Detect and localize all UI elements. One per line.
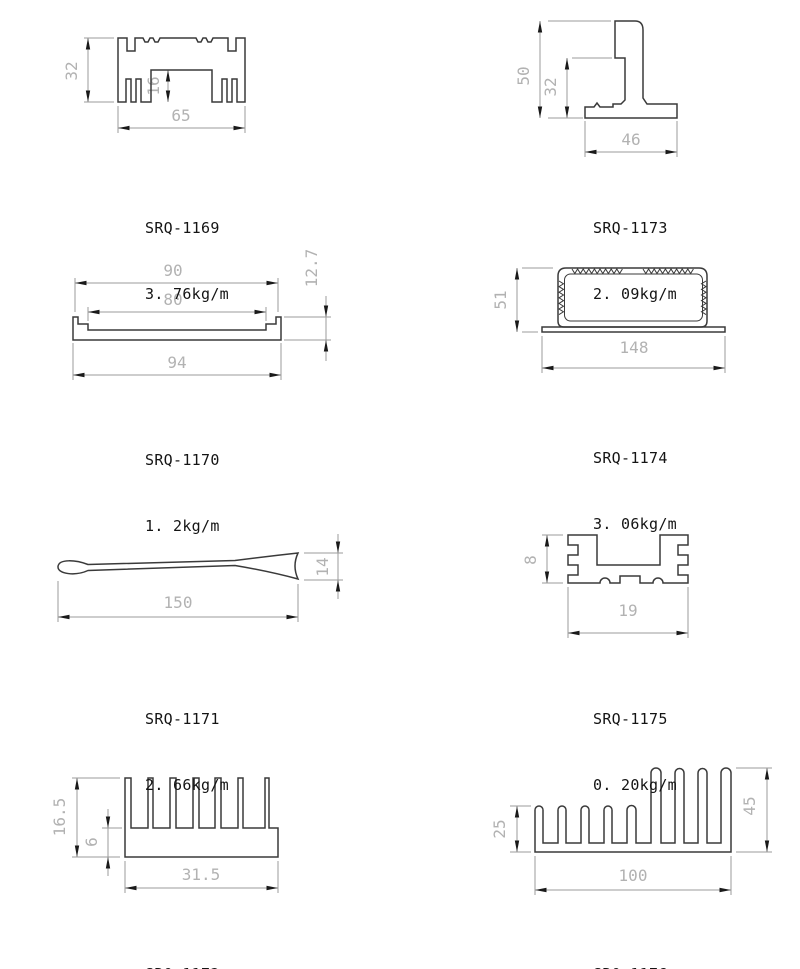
dim-width-label: 65 — [171, 106, 190, 125]
label-srq-1170: SRQ-1170 1. 2kg/m — [145, 405, 220, 559]
dim-fin-height-tall-label: 45 — [740, 796, 759, 815]
dimension-width-148: 148 — [542, 336, 725, 373]
serration-left-wall — [559, 281, 564, 315]
model-label: SRQ-1170 — [145, 449, 220, 471]
model-label: SRQ-1175 — [593, 708, 677, 730]
dim-inner-height-label: 16 — [144, 76, 163, 95]
dimension-height-14: 14 — [304, 534, 343, 599]
label-srq-1172: SRQ-1172 0. 872kg/m — [145, 919, 238, 969]
dim-height-label: 16.5 — [50, 798, 69, 837]
dimension-height-8: 8 — [521, 535, 563, 583]
model-label: SRQ-1174 — [593, 447, 677, 469]
label-srq-1176: SRQ-1176 3. 94kg/m — [593, 919, 677, 969]
dim-height-label: 12.7 — [302, 249, 321, 288]
label-srq-1169: SRQ-1169 3. 76kg/m — [145, 173, 229, 327]
dimension-fin-height-tall-45: 45 — [736, 768, 772, 852]
weight-label: 1. 2kg/m — [145, 515, 220, 537]
model-label: SRQ-1176 — [593, 963, 677, 969]
dimension-width-94: 94 — [73, 343, 281, 380]
dimension-base-height-6: 6 — [82, 809, 122, 876]
dim-height-label: 8 — [521, 555, 540, 565]
model-label: SRQ-1169 — [145, 217, 229, 239]
dim-length-label: 150 — [164, 593, 193, 612]
model-label: SRQ-1172 — [145, 963, 238, 969]
dim-width-label: 19 — [618, 601, 637, 620]
dim-height-label: 32 — [62, 61, 81, 80]
dimension-width-19: 19 — [568, 587, 688, 638]
dim-width-label: 94 — [167, 353, 186, 372]
dimension-width-100: 100 — [535, 856, 731, 895]
dim-step-height-label: 32 — [541, 77, 560, 96]
drawing-srq-1169: 32 16 65 — [55, 15, 355, 155]
dimension-fin-height-short-25: 25 — [490, 806, 531, 852]
dim-base-height-label: 6 — [82, 837, 101, 847]
weight-label: 0. 20kg/m — [593, 774, 677, 796]
dim-height-label: 50 — [514, 66, 533, 85]
weight-label: 3. 76kg/m — [145, 283, 229, 305]
dimension-base-width-46: 46 — [585, 121, 677, 157]
label-srq-1175: SRQ-1175 0. 20kg/m — [593, 664, 677, 818]
dimension-width-65: 65 — [118, 106, 245, 133]
dim-width-label: 31.5 — [182, 865, 221, 884]
profile-outline — [585, 21, 677, 118]
dim-height-label: 51 — [491, 290, 510, 309]
catalog-page: 32 16 65 50 32 46 90 80 — [0, 0, 800, 969]
dim-base-width-label: 46 — [621, 130, 640, 149]
model-label: SRQ-1173 — [593, 217, 677, 239]
label-srq-1171: SRQ-1171 2. 66kg/m — [145, 664, 229, 818]
drawing-srq-1173: 50 32 46 — [495, 10, 755, 160]
label-srq-1174: SRQ-1174 3. 06kg/m — [593, 403, 677, 557]
dimension-height-32: 32 — [62, 38, 114, 102]
dimension-height-51: 51 — [491, 268, 553, 332]
dimension-inner-height-16: 16 — [144, 70, 168, 102]
dimension-step-height-32: 32 — [541, 58, 612, 118]
dim-height-label: 14 — [313, 557, 332, 576]
weight-label: 2. 09kg/m — [593, 283, 677, 305]
profile-outline — [118, 38, 245, 102]
dim-fin-height-short-label: 25 — [490, 819, 509, 838]
dimension-height-12.7: 12.7 — [284, 249, 331, 361]
dim-width-label: 148 — [620, 338, 649, 357]
weight-label: 3. 06kg/m — [593, 513, 677, 535]
dimension-width-31.5: 31.5 — [125, 861, 278, 893]
weight-label: 2. 66kg/m — [145, 774, 229, 796]
dim-width-label: 100 — [619, 866, 648, 885]
dimension-length-150: 150 — [58, 581, 298, 622]
model-label: SRQ-1171 — [145, 708, 229, 730]
label-srq-1173: SRQ-1173 2. 09kg/m — [593, 173, 677, 327]
